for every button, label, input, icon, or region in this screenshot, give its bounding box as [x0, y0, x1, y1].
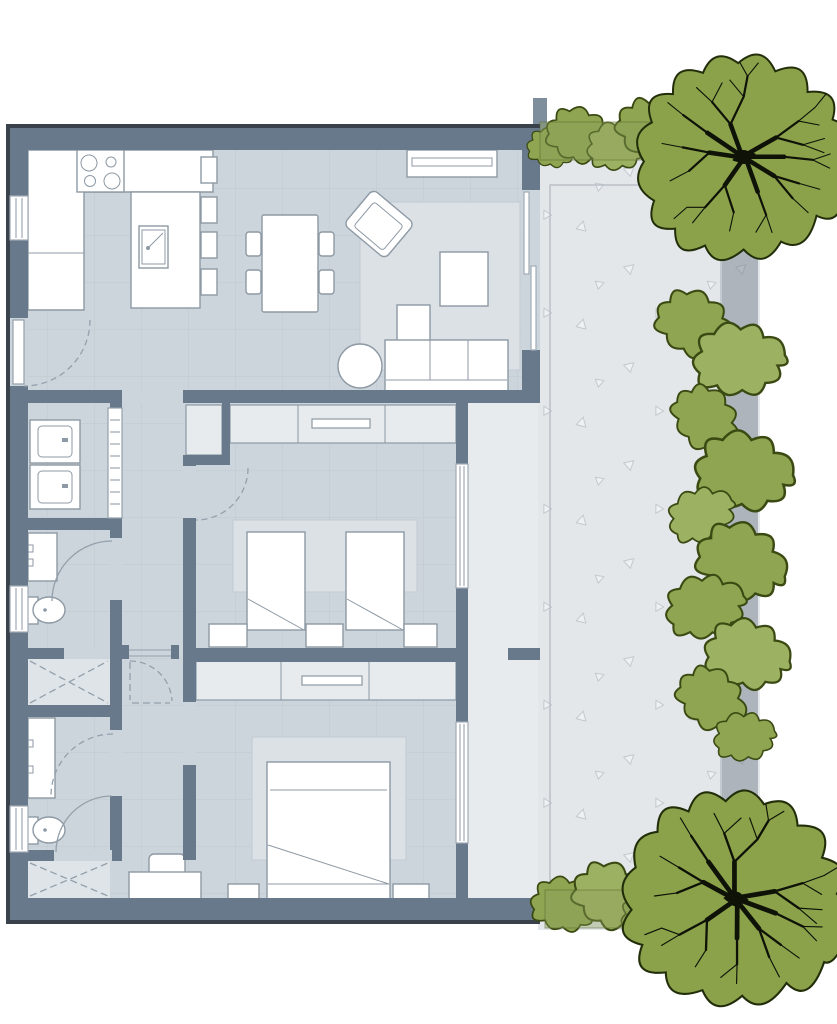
wall-terrace-stub	[508, 648, 540, 660]
nightstand	[306, 624, 343, 647]
wall-bottom	[10, 898, 540, 920]
wall-closet-jog	[222, 403, 230, 459]
sink-icon	[139, 226, 168, 268]
dining-chair	[246, 232, 261, 256]
bedroom1-door-opening	[183, 466, 196, 518]
hall-closet	[186, 405, 222, 455]
bath2-door-opening	[110, 730, 122, 796]
vanity-sink-icon	[26, 718, 55, 798]
wall-top	[10, 128, 540, 150]
wall-closet-return	[183, 455, 230, 465]
toilet-icon	[27, 597, 65, 624]
window-bath2	[10, 806, 28, 852]
wall-shower1-bath2	[10, 705, 122, 717]
wall-living-bedroom1	[183, 390, 540, 403]
dining-chair	[319, 270, 334, 294]
wall-bedroom2-left-b	[183, 765, 196, 860]
wall-bedroom-right-b	[456, 588, 468, 722]
wall-bedroom1-left-b	[183, 518, 196, 648]
dining-table	[262, 215, 318, 312]
sliding-glass-door	[522, 190, 540, 350]
floor-plan-canvas: Apartment floor plan with garden terrace…	[0, 0, 837, 1024]
window-bath1	[10, 586, 28, 632]
dining-chair	[246, 270, 261, 294]
wall-bedroom-right-c	[456, 843, 468, 898]
window-kitchen	[10, 196, 28, 240]
laundry-folding-door	[108, 408, 122, 518]
wardrobe	[196, 660, 456, 700]
twin-bed-1	[247, 532, 305, 630]
wall-bedroom-right-a	[456, 390, 468, 464]
bedroom2-door-opening	[183, 702, 196, 765]
toilet-icon	[27, 817, 65, 844]
shower-2-floor	[28, 861, 110, 898]
round-side-table	[338, 344, 382, 388]
laundry-room	[30, 420, 80, 509]
hanging-rail-icon	[302, 676, 362, 685]
twin-bed-2	[346, 532, 404, 630]
nightstand	[404, 624, 437, 647]
wall-bedroom2-left-a	[183, 662, 196, 702]
bath1-door-opening	[110, 538, 122, 600]
window-bedroom2	[456, 722, 468, 843]
shower1-opening	[64, 648, 110, 659]
nightstand	[209, 624, 247, 647]
vanity-sink-icon	[26, 533, 57, 581]
wardrobe	[230, 405, 456, 443]
hanging-rail-icon	[312, 419, 370, 428]
corridor-opening	[122, 390, 183, 403]
wall-bedroom1-bedroom2	[183, 648, 468, 662]
shower2-opening	[54, 850, 112, 861]
double-bed	[267, 762, 390, 902]
dining-chair	[319, 232, 334, 256]
coffee-table	[440, 252, 488, 306]
floor-plan-drawing: Apartment floor plan with garden terrace…	[0, 0, 837, 1024]
wall-laundry-top	[10, 390, 122, 403]
window-bedroom1	[456, 464, 468, 588]
wall-laundry-bath1	[10, 518, 122, 530]
stove-icon	[77, 150, 124, 192]
dryer-icon	[30, 465, 80, 509]
washer-icon	[30, 420, 80, 463]
tv-console	[407, 150, 497, 177]
